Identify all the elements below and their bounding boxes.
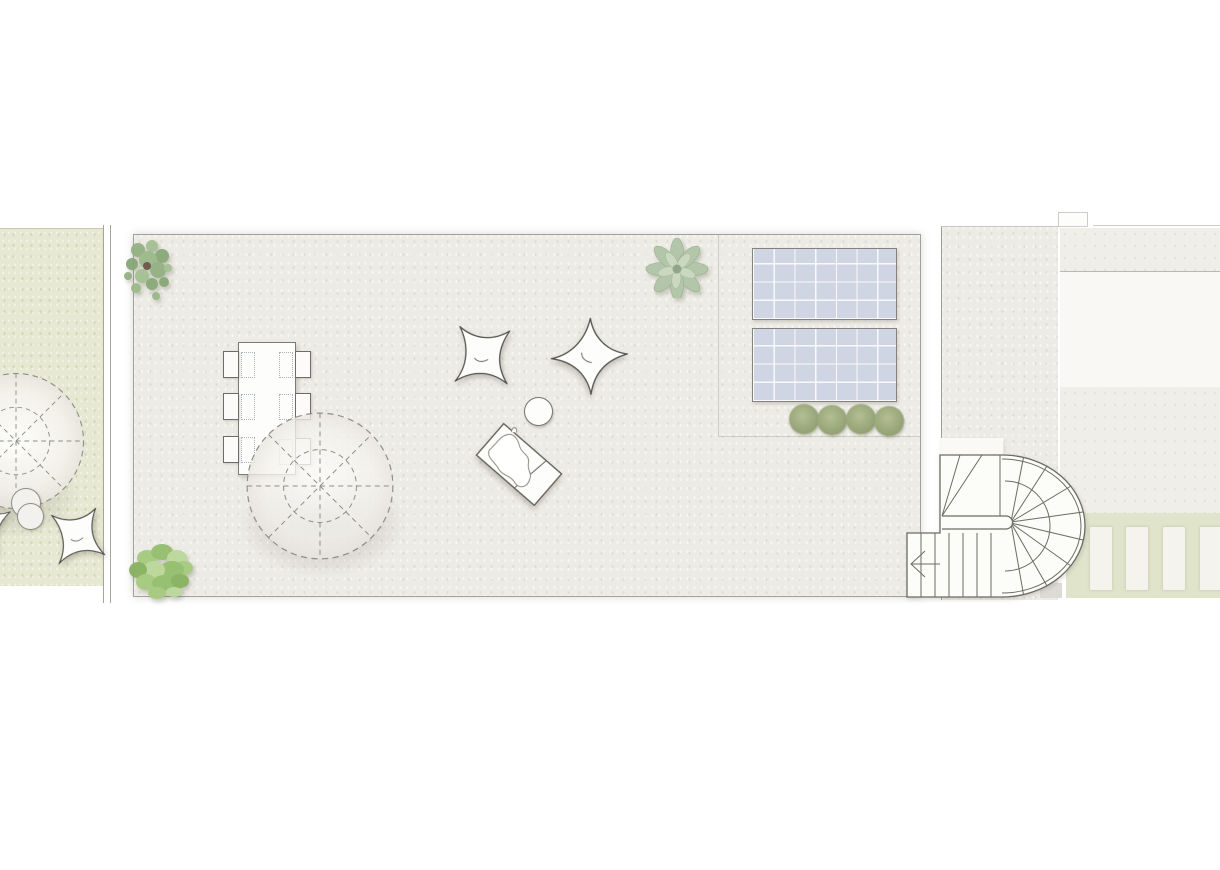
pergola-slat — [1200, 527, 1220, 590]
shrub — [789, 404, 819, 434]
chair-dashed-outline — [241, 352, 255, 378]
roof-edge-line — [1093, 225, 1220, 226]
adjacent-roof-band-top — [1060, 228, 1220, 272]
tree-icon — [118, 238, 180, 304]
roof-terrace-plan — [0, 0, 1220, 870]
succulent-plant-icon — [644, 238, 710, 298]
u-shaped-staircase-icon — [900, 435, 1095, 605]
pergola-slat — [1126, 527, 1148, 590]
dining-chair — [295, 351, 311, 378]
shrub — [874, 406, 904, 436]
bean-bag-icon — [441, 315, 522, 396]
bean-bag-icon — [40, 499, 115, 574]
dining-chair — [223, 393, 239, 420]
dining-chair — [223, 436, 239, 463]
roof-notch — [1058, 212, 1088, 227]
chair-dashed-outline — [279, 352, 293, 378]
adjacent-roof-panel — [1060, 272, 1220, 387]
bush-icon — [122, 538, 197, 600]
solar-panel — [752, 328, 897, 402]
shrub — [846, 404, 876, 434]
side-table — [524, 397, 553, 426]
pergola-slat — [1163, 527, 1185, 590]
parasol-icon — [239, 405, 401, 567]
dining-chair — [223, 351, 239, 378]
shrub — [817, 405, 847, 435]
solar-panel — [752, 248, 897, 320]
